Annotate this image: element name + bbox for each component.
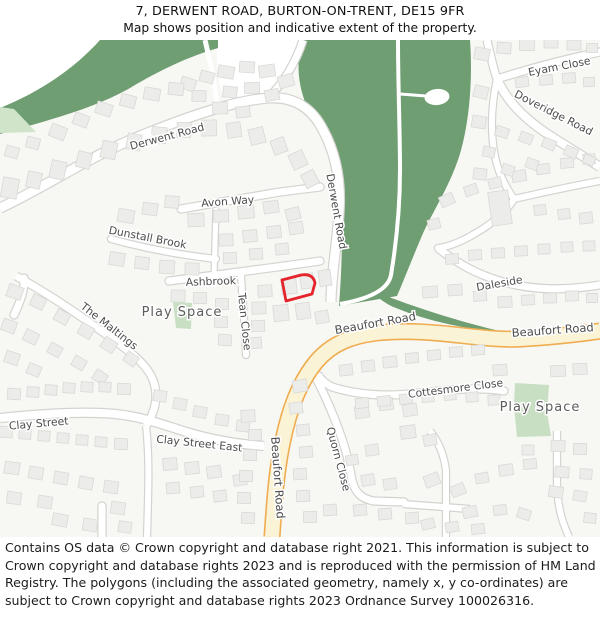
building [296,490,310,502]
building [378,508,392,520]
building [295,302,311,320]
building [226,122,242,139]
building [184,461,199,474]
building [515,76,529,88]
building [475,472,490,484]
map-header: 7, DERWENT ROAD, BURTON-ON-TRENT, DE15 9… [0,0,600,40]
building [222,86,237,98]
building [166,482,180,494]
building [99,382,112,393]
building [134,256,149,270]
building [355,397,369,408]
building [76,435,89,446]
building [110,501,126,515]
building [213,210,229,223]
building [218,334,232,346]
building [521,295,535,306]
road-footpath-branch [400,94,426,96]
building [361,474,376,487]
building [498,296,513,308]
building [543,293,556,303]
street-label: Ashbrook [185,274,237,289]
building [38,431,51,442]
building [493,504,507,516]
building [6,491,22,505]
building [544,40,558,48]
building [100,140,118,160]
building [244,450,257,461]
building [258,285,273,298]
page-title: 7, DERWENT ROAD, BURTON-ON-TRENT, DE15 9… [0,0,600,19]
building [37,495,53,509]
area-label: Play Space [500,400,581,415]
building [449,347,463,358]
building [514,246,528,257]
building [237,492,250,503]
building [520,40,535,51]
building [523,458,537,469]
building [405,512,419,524]
building [400,425,417,440]
building [252,302,267,315]
building [288,221,304,235]
building [173,397,188,410]
building [498,464,513,477]
building [273,304,290,321]
building [567,40,581,50]
building [168,82,184,96]
building [165,196,180,209]
building [555,466,570,478]
building [45,385,58,396]
building [405,352,419,363]
building [445,521,459,533]
building [315,310,330,324]
building [4,461,21,475]
building [118,521,132,534]
building [171,290,185,302]
building [565,291,578,301]
building [551,440,565,451]
building [402,403,418,417]
building [471,115,487,129]
building [28,466,44,480]
building [0,177,19,199]
building [190,486,204,498]
building [299,446,313,458]
building [266,225,281,239]
building [188,213,205,227]
building [293,468,307,480]
building [239,61,255,73]
area-label: Play Space [142,305,223,320]
building [445,254,459,265]
building [159,260,175,274]
building [296,424,310,436]
copyright-text: Contains OS data © Crown copyright and d… [5,539,596,609]
building [562,73,576,84]
building [248,429,261,440]
building [382,356,397,368]
building [27,387,40,398]
building [248,126,266,145]
building [95,437,108,448]
building [185,263,199,275]
building [560,157,574,168]
building [550,365,566,377]
property-map-page: 7, DERWENT ROAD, BURTON-ON-TRENT, DE15 9… [0,0,600,625]
building [448,284,463,296]
map-footer: Contains OS data © Crown copyright and d… [0,537,600,625]
building [587,44,598,53]
building [557,208,570,220]
building [264,88,280,101]
building [193,405,208,418]
building [488,190,513,226]
building [109,251,126,266]
building [427,349,441,360]
building [78,476,94,490]
building [473,168,487,181]
building [361,360,375,372]
building [533,204,546,216]
building [482,146,496,158]
building [423,433,438,446]
building [497,42,512,54]
building [206,465,222,479]
building [52,513,69,527]
building [353,504,367,516]
building [235,106,250,118]
building [318,269,332,287]
building [142,202,159,216]
building [243,229,258,242]
building [217,65,235,80]
building [258,64,276,78]
building [471,523,485,534]
building [241,410,256,423]
building [244,82,259,94]
building [339,364,353,376]
building [468,250,482,261]
building [323,504,337,516]
building [573,363,588,375]
building [263,200,280,214]
building [580,469,593,480]
building [25,171,42,190]
map-container: Derwent RoadDerwent RoadAvon WayDunstall… [0,40,600,537]
building [522,445,534,455]
building [292,379,308,393]
building [303,511,316,522]
building [213,490,227,503]
building [57,433,70,444]
building [192,90,206,101]
building [573,490,588,502]
building [194,293,207,304]
building [275,243,289,255]
building [488,395,501,406]
property-map: Derwent RoadDerwent RoadAvon WayDunstall… [0,40,600,537]
building [573,443,586,454]
building [474,47,491,61]
building [471,345,485,356]
building [251,320,264,331]
building [219,234,234,247]
building [241,512,255,524]
building [49,160,67,181]
building [223,252,236,263]
building [493,364,508,376]
building [117,383,131,395]
building [377,395,391,406]
building [7,388,21,400]
building [215,414,229,427]
building [249,248,263,260]
building [289,402,303,415]
building [63,383,76,394]
building [82,518,98,532]
building [153,390,167,403]
building [583,241,595,251]
building [163,457,178,470]
building [117,208,135,224]
building [583,77,594,87]
building [422,286,438,298]
page-subtitle: Map shows position and indicative extent… [0,19,600,35]
building [548,486,563,499]
building [383,478,397,491]
building [365,444,379,457]
building [212,102,227,115]
building [491,248,505,259]
building [561,242,573,252]
building [81,382,94,393]
building [114,438,128,450]
building [239,470,252,481]
building [579,212,593,224]
building [53,471,69,485]
building [462,505,478,519]
building [584,512,597,523]
building [143,87,161,102]
road-maltings-south [146,426,148,537]
building [586,293,597,302]
building [103,480,119,494]
building [538,244,550,254]
